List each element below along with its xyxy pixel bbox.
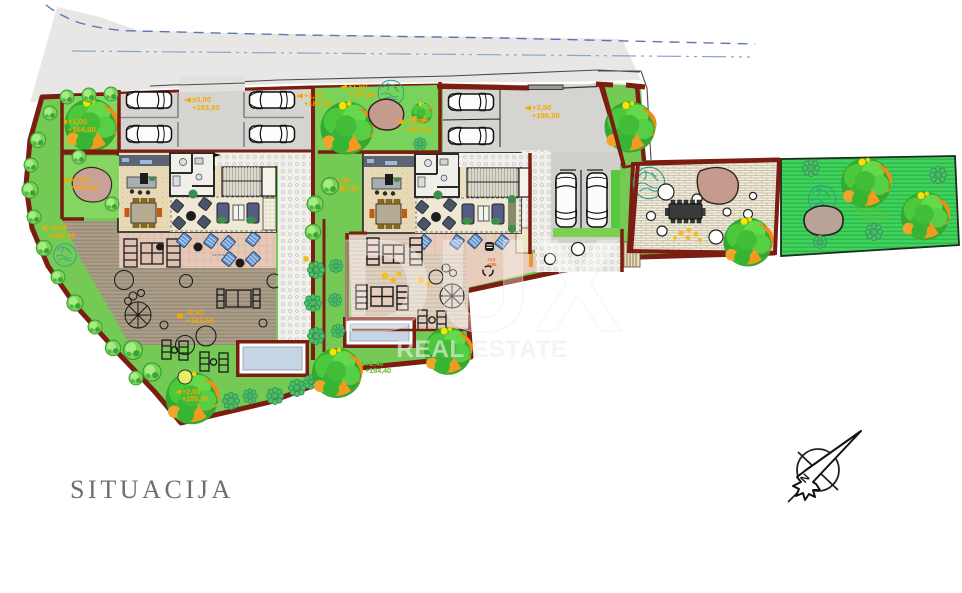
svg-text:sun terrace: sun terrace: [212, 253, 228, 257]
svg-text:REAL ESTATE: REAL ESTATE: [396, 336, 568, 363]
svg-text:+185,00: +185,00: [860, 213, 888, 222]
svg-text:+183,00: +183,00: [192, 103, 220, 112]
svg-text:+182,00: +182,00: [48, 231, 76, 240]
svg-text:+184,00: +184,00: [68, 125, 96, 134]
svg-text:+184,40: +184,40: [365, 366, 391, 375]
svg-text:+184,00: +184,00: [304, 99, 332, 108]
svg-text:+184,50: +184,50: [348, 90, 376, 99]
svg-text:+186,50: +186,50: [532, 111, 560, 120]
svg-text:SITUACIJA: SITUACIJA: [70, 475, 234, 504]
svg-text:+183,40: +183,40: [70, 183, 98, 192]
svg-text:+185,50: +185,50: [404, 125, 432, 134]
svg-text:+182,50: +182,50: [186, 316, 214, 325]
svg-text:+185,00: +185,00: [182, 394, 208, 403]
